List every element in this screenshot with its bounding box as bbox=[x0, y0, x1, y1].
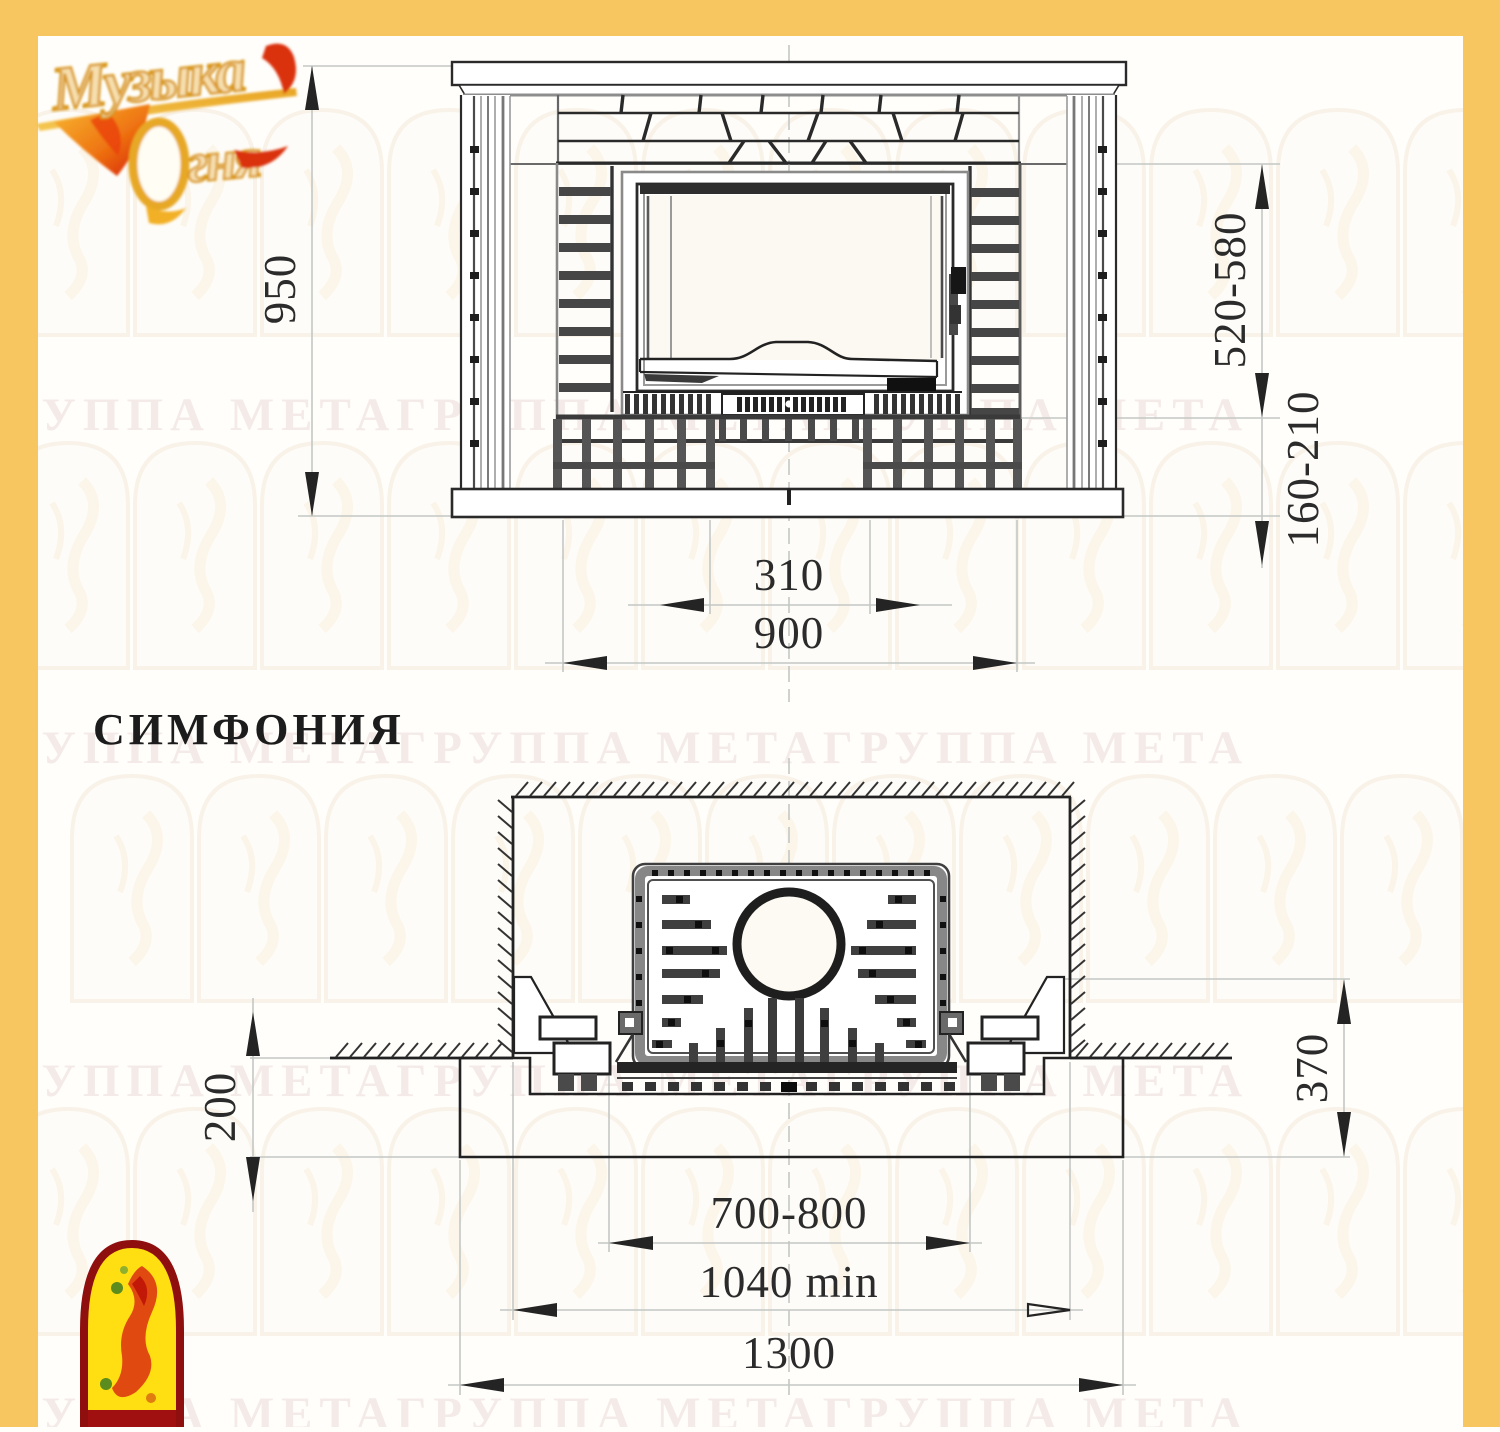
svg-text:700-800: 700-800 bbox=[711, 1188, 868, 1238]
svg-text:1040 min: 1040 min bbox=[699, 1257, 878, 1307]
svg-text:160-210: 160-210 bbox=[1278, 391, 1328, 548]
svg-text:200: 200 bbox=[195, 1072, 245, 1143]
svg-text:310: 310 bbox=[754, 550, 825, 600]
svg-text:ГРУППА МЕТАГРУППА МЕТАГРУППА М: ГРУППА МЕТАГРУППА МЕТАГРУППА МЕТА bbox=[0, 1388, 1249, 1427]
svg-text:1300: 1300 bbox=[742, 1328, 836, 1378]
svg-text:370: 370 bbox=[1287, 1033, 1337, 1104]
svg-text:950: 950 bbox=[255, 254, 305, 325]
svg-text:СИМФОНИЯ: СИМФОНИЯ bbox=[93, 705, 405, 754]
svg-text:900: 900 bbox=[754, 608, 825, 658]
svg-text:520-580: 520-580 bbox=[1205, 212, 1255, 369]
